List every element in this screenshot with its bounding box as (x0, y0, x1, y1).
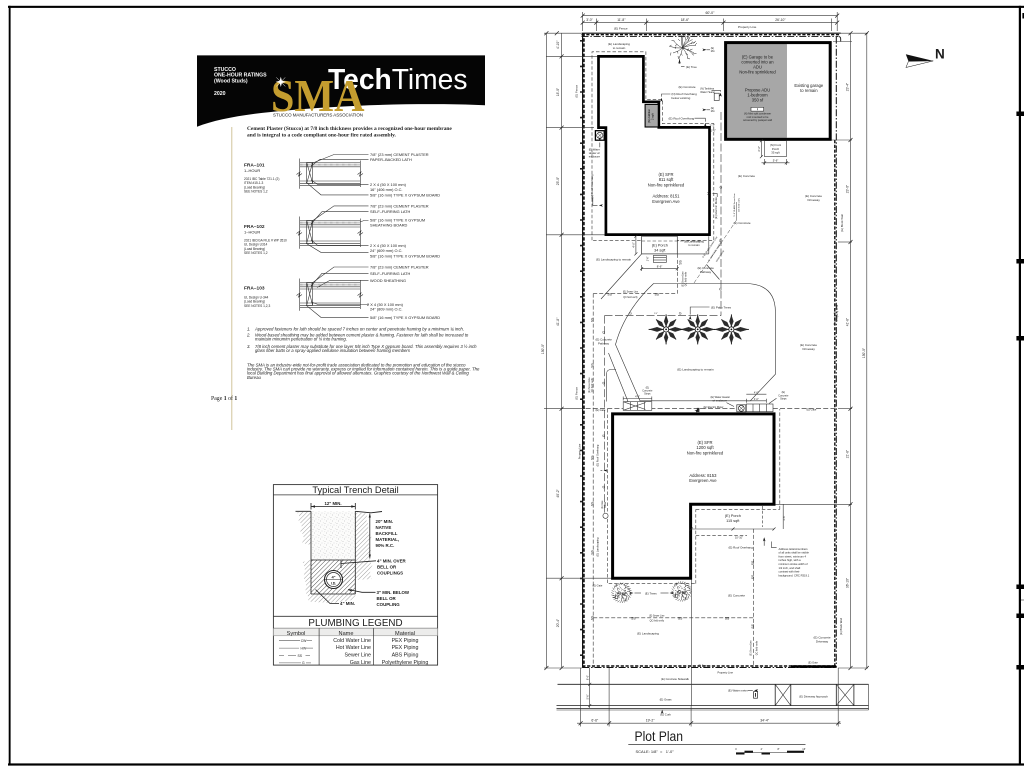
svg-text:(E) Trees: (E) Trees (645, 591, 657, 595)
svg-text:16" (406 mm) O.C.: 16" (406 mm) O.C. (370, 187, 403, 192)
svg-text:19'-2": 19'-2" (646, 719, 655, 723)
svg-text:COUPLINGS: COUPLINGS (377, 570, 403, 575)
svg-text:Approved fasteners for lath sh: Approved fasteners for lath should be sp… (254, 327, 464, 332)
svg-text:(E) Block Wall: (E) Block Wall (839, 618, 843, 635)
svg-text:5/8" (16 mm) TYPE X GYPSUM BOA: 5/8" (16 mm) TYPE X GYPSUM BOARD (370, 315, 440, 320)
svg-text:BACKFILL: BACKFILL (376, 531, 398, 536)
svg-text:1.: 1. (247, 327, 251, 332)
svg-text:3'-6": 3'-6" (782, 515, 786, 520)
svg-text:COUPLING: COUPLING (377, 602, 401, 607)
svg-text:(E) Sewer Line: (E) Sewer Line (750, 640, 753, 656)
svg-text:(E) Concrete: (E) Concrete (679, 85, 696, 89)
svg-text:MATERIAL,: MATERIAL, (376, 537, 400, 542)
svg-text:(E) Sewer Line: (E) Sewer Line (682, 271, 685, 287)
svg-text:maintain minumim penetration o: maintain minumim penetration of ⅜ into f… (255, 337, 347, 342)
svg-text:(E) Gate: (E) Gate (808, 660, 818, 664)
svg-text:1/2 inch, and shall: 1/2 inch, and shall (779, 566, 801, 570)
svg-text:Min: Min (711, 50, 716, 53)
svg-text:(E) Gate: (E) Gate (593, 583, 603, 587)
svg-text:(N) Addition: (N) Addition (647, 108, 651, 123)
svg-text:24" (609 mm) O.C.: 24" (609 mm) O.C. (370, 248, 403, 253)
svg-text:(E) Sewer Line: (E) Sewer Line (649, 614, 665, 617)
svg-text:26'-10": 26'-10" (775, 18, 786, 22)
svg-text:G: G (602, 331, 606, 334)
svg-text:SS: SS (591, 363, 595, 368)
svg-text:1'-6": 1'-6" (647, 256, 650, 261)
svg-text:(E) Sewer Line: (E) Sewer Line (623, 291, 639, 294)
svg-text:SEE NOTES 1,2: SEE NOTES 1,2 (244, 251, 268, 255)
svg-text:(E) Driveway Approach: (E) Driveway Approach (799, 695, 828, 699)
svg-text:Plot Plan: Plot Plan (635, 728, 684, 744)
svg-text:18'-6": 18'-6" (681, 18, 690, 22)
svg-text:SS: SS (631, 616, 636, 620)
svg-text:SS: SS (751, 623, 755, 628)
svg-text:to remain: to remain (688, 243, 700, 247)
svg-text:5'-6": 5'-6" (773, 159, 779, 163)
svg-text:enclosure: enclosure (589, 154, 601, 158)
svg-text:screened by parapet wall: screened by parapet wall (743, 118, 772, 122)
svg-text:SS: SS (298, 654, 303, 658)
svg-text:Bureau: Bureau (247, 375, 261, 380)
svg-text:21'-8": 21'-8" (846, 449, 850, 458)
svg-text:SEE NOTES 1,2: SEE NOTES 1,2 (244, 190, 268, 194)
svg-text:3'-0": 3'-0" (586, 18, 593, 22)
svg-text:4": 4" (331, 574, 335, 579)
svg-text:(E) Electric Meter: (E) Electric Meter (714, 197, 718, 219)
svg-text:BELL OR: BELL OR (377, 596, 397, 601)
svg-text:QC field verify: QC field verify (756, 640, 759, 655)
svg-text:(E) Landscaping to remain: (E) Landscaping to remain (677, 368, 714, 372)
svg-text:(E) Tree: (E) Tree (686, 65, 697, 69)
svg-text:G: G (629, 311, 632, 315)
svg-text:(E) Porch: (E) Porch (725, 514, 741, 518)
svg-text:(E) Curb: (E) Curb (660, 712, 671, 716)
svg-text:inches high, with a: inches high, with a (779, 558, 802, 562)
svg-text:SS: SS (725, 616, 730, 620)
svg-text:CW: CW (301, 639, 307, 643)
svg-text:ABS Piping: ABS Piping (392, 653, 419, 659)
svg-text:10'-10": 10'-10" (735, 536, 743, 540)
svg-text:34'-4": 34'-4" (760, 719, 769, 723)
svg-text:SHEATHING BOARD: SHEATHING BOARD (370, 222, 408, 227)
svg-text:4'-0": 4'-0" (754, 391, 759, 394)
svg-text:(E) Sewer Line: (E) Sewer Line (588, 377, 591, 393)
svg-text:Pathway: Pathway (700, 270, 712, 274)
svg-text:G: G (679, 311, 682, 315)
svg-text:23'-0": 23'-0" (846, 184, 850, 193)
svg-text:Name: Name (339, 631, 354, 637)
svg-text:1'-6": 1'-6" (711, 129, 716, 133)
svg-text:background. CRC R319.1: background. CRC R319.1 (779, 573, 810, 577)
svg-text:Evergreen Ave: Evergreen Ave (689, 478, 717, 483)
svg-text:of all units shall be visible: of all units shall be visible (779, 551, 810, 555)
svg-text:(E) Fence: (E) Fence (574, 85, 578, 98)
svg-text:5/8" (16 mm) TYPE X GYPSUM BOA: 5/8" (16 mm) TYPE X GYPSUM BOARD (370, 254, 440, 259)
svg-text:Sewer Line: Sewer Line (345, 653, 372, 659)
svg-text:G: G (302, 661, 305, 665)
svg-text:minimum stroke width of: minimum stroke width of (779, 562, 808, 566)
svg-text:(E) Porch: (E) Porch (652, 244, 668, 248)
svg-text:PLUMBING LEGEND: PLUMBING LEGEND (308, 618, 402, 629)
svg-text:WOOD SHEATHING: WOOD SHEATHING (370, 278, 406, 283)
svg-text:Typical Trench Detail: Typical Trench Detail (312, 485, 398, 495)
svg-text:Steps: Steps (780, 398, 787, 401)
svg-text:Water Heater: Water Heater (700, 91, 715, 94)
svg-text:from street, minimum 4: from street, minimum 4 (779, 554, 807, 558)
svg-text:6'-6": 6'-6" (757, 146, 761, 152)
svg-text:8'-6": 8'-6" (657, 265, 663, 269)
svg-text:1–HOUR: 1–HOUR (244, 168, 260, 173)
svg-text:Gas Line: Gas Line (350, 660, 371, 666)
svg-text:Driveway: Driveway (803, 347, 816, 351)
svg-text:6'-0": 6'-0" (586, 675, 590, 680)
svg-text:(E) Water: (E) Water (589, 148, 600, 152)
svg-text:(E) Electric Meter: (E) Electric Meter (704, 405, 724, 409)
svg-text:5'-6": 5'-6" (585, 694, 589, 699)
svg-text:Driveway: Driveway (808, 198, 821, 202)
svg-text:(E) Landscaping to remain: (E) Landscaping to remain (596, 258, 632, 262)
svg-text:SS: SS (591, 317, 595, 322)
svg-text:QC field verify: QC field verify (685, 271, 688, 286)
svg-text:Steps: Steps (644, 393, 651, 396)
svg-text:(E) Palm Trees: (E) Palm Trees (711, 305, 732, 309)
svg-text:90% R.C.: 90% R.C. (376, 543, 395, 548)
svg-text:(E) Concrete: (E) Concrete (738, 174, 755, 178)
svg-text:G: G (602, 485, 606, 488)
svg-text:QC field verify: QC field verify (650, 620, 665, 623)
svg-text:35 sqft: 35 sqft (771, 151, 780, 155)
svg-text:G: G (602, 381, 606, 384)
svg-text:SS: SS (655, 292, 660, 296)
svg-text:Driveway: Driveway (816, 639, 829, 643)
svg-text:23'-4": 23'-4" (846, 82, 850, 91)
svg-text:(E) Roof Overhang: (E) Roof Overhang (590, 174, 594, 199)
svg-text:(E) Grass: (E) Grass (660, 697, 673, 701)
svg-text:(E) Concrete: (E) Concrete (734, 221, 751, 225)
svg-text:PEX Piping: PEX Piping (392, 638, 419, 644)
svg-text:QC field verify: QC field verify (623, 296, 638, 299)
svg-text:(E) Concrete Sidewalk: (E) Concrete Sidewalk (661, 677, 689, 681)
svg-text:24" (809 mm) O.C.: 24" (809 mm) O.C. (370, 307, 403, 312)
svg-text:to remain: to remain (613, 46, 626, 50)
svg-text:(E) Landscaping: (E) Landscaping (596, 537, 600, 556)
svg-text:7/8" (23 mm) CEMENT PLASTER: 7/8" (23 mm) CEMENT PLASTER (370, 203, 429, 208)
svg-text:(E) Landscaping: (E) Landscaping (684, 240, 704, 244)
svg-text:2020: 2020 (214, 91, 226, 97)
svg-text:Property Line: Property Line (718, 671, 734, 675)
svg-text:(E) Roof Overhang: (E) Roof Overhang (729, 545, 754, 549)
svg-text:SS: SS (591, 501, 595, 506)
svg-text:and is integral to a code comp: and is integral to a code compliant one-… (247, 133, 397, 139)
svg-text:(E) Fence: (E) Fence (614, 26, 628, 30)
svg-text:(E) Roof OverHang: (E) Roof OverHang (669, 116, 695, 120)
svg-text:(E) Fence: (E) Fence (698, 664, 709, 667)
svg-text:Cement Plaster (Stucco) at 7/8: Cement Plaster (Stucco) at 7/8 inch thic… (247, 125, 452, 132)
svg-text:Min: Min (711, 110, 716, 113)
svg-text:40'-2": 40'-2" (556, 488, 560, 497)
svg-text:Material: Material (395, 631, 415, 637)
svg-text:36'-10": 36'-10" (846, 577, 850, 588)
svg-text:12" MIN.: 12" MIN. (324, 501, 341, 506)
svg-text:(E) Gate: (E) Gate (807, 408, 817, 412)
svg-text:4" MIN. OVER: 4" MIN. OVER (377, 558, 407, 563)
svg-text:3.: 3. (247, 344, 251, 349)
svg-text:(E) Landscaping: (E) Landscaping (637, 631, 659, 635)
svg-text:(E) Block Wall: (E) Block Wall (840, 214, 844, 232)
svg-text:SS: SS (751, 574, 755, 579)
svg-text:SS: SS (607, 292, 612, 296)
svg-text:150'-0": 150'-0" (862, 347, 866, 358)
svg-text:SELF–FURRING LATH: SELF–FURRING LATH (370, 271, 411, 276)
svg-text:Hot Water Line: Hot Water Line (336, 645, 371, 651)
svg-text:PAPER–BACKED LATH: PAPER–BACKED LATH (370, 157, 412, 162)
svg-text:(Wood Studs): (Wood Studs) (214, 79, 248, 85)
svg-text:SS: SS (679, 260, 683, 265)
svg-text:5'-0" Ø ABS Sewer Line: 5'-0" Ø ABS Sewer Line (733, 193, 736, 217)
svg-text:4'-6": 4'-6" (632, 242, 636, 248)
svg-text:350 sf: 350 sf (752, 98, 764, 103)
svg-text:(E) Water Heater: (E) Water Heater (711, 395, 731, 399)
svg-text:20'-4": 20'-4" (556, 618, 560, 627)
svg-text:HW: HW (301, 646, 307, 650)
svg-text:11'-8": 11'-8" (617, 18, 626, 22)
svg-text:glass fiber batts or a spray-a: glass fiber batts or a spray-applied cel… (255, 348, 411, 353)
svg-text:NATIVE: NATIVE (376, 525, 392, 530)
svg-text:Non-fire sprinklered: Non-fire sprinklered (739, 69, 776, 74)
svg-text:Meter: Meter (604, 501, 607, 507)
svg-text:(E) Gas: (E) Gas (602, 500, 604, 509)
svg-text:(E) Water meter: (E) Water meter (728, 688, 748, 692)
svg-text:Polyethylene Piping: Polyethylene Piping (382, 660, 429, 666)
svg-text:STUCCO MANUFACTURERS ASSOCIATI: STUCCO MANUFACTURERS ASSOCIATION (273, 113, 363, 118)
svg-text:below existing: below existing (671, 96, 690, 100)
svg-text:G: G (720, 186, 723, 190)
svg-text:contrast with their: contrast with their (779, 570, 800, 574)
svg-text:SS: SS (591, 549, 595, 554)
svg-text:150'-0": 150'-0" (541, 343, 545, 354)
svg-text:41'-8": 41'-8" (846, 317, 850, 326)
svg-text:(E) Fence: (E) Fence (574, 387, 578, 400)
svg-text:6'-6": 6'-6" (591, 719, 599, 723)
svg-text:SCALE: 1/8" = 1'-0": SCALE: 1/8" = 1'-0" (636, 749, 675, 754)
svg-text:Cold Water Line: Cold Water Line (333, 638, 371, 644)
svg-text:SS: SS (678, 616, 683, 620)
svg-text:1'0": 1'0" (654, 313, 658, 315)
svg-text:G: G (719, 287, 723, 290)
svg-text:SS: SS (591, 455, 595, 460)
svg-text:18'-0": 18'-0" (556, 87, 560, 96)
svg-text:20" MIN.: 20" MIN. (376, 519, 393, 524)
svg-text:16': 16' (802, 747, 806, 751)
svg-text:PEX Piping: PEX Piping (392, 645, 419, 651)
svg-text:BELL OR: BELL OR (377, 564, 397, 569)
svg-text:4'-10": 4'-10" (556, 40, 560, 49)
svg-text:Property Line: Property Line (577, 443, 581, 459)
svg-text:Page 1 of 1: Page 1 of 1 (211, 395, 237, 402)
svg-text:Pathway: Pathway (598, 342, 610, 346)
svg-text:4'-0": 4'-0" (754, 398, 759, 401)
svg-text:2.: 2. (246, 332, 251, 337)
svg-text:Evergreen Ave: Evergreen Ave (652, 199, 680, 204)
svg-text:34 sqft: 34 sqft (654, 249, 666, 253)
svg-text:4" MIN.: 4" MIN. (340, 601, 355, 606)
svg-text:1–HOUR: 1–HOUR (244, 230, 260, 235)
svg-text:(E) Concrete: (E) Concrete (728, 593, 745, 597)
svg-text:25'-0": 25'-0" (556, 176, 560, 185)
svg-text:I.D.: I.D. (331, 581, 337, 585)
svg-text:(E) Roof Overhang: (E) Roof Overhang (596, 444, 600, 466)
svg-text:Property Line: Property Line (833, 309, 837, 325)
svg-text:QC field verify: QC field verify (591, 377, 594, 392)
svg-text:Property Line: Property Line (738, 25, 757, 29)
svg-text:local Building Department has: local Building Department has final appr… (247, 371, 469, 376)
svg-text:FRA–103: FRA–103 (244, 286, 265, 292)
svg-text:SS: SS (751, 560, 755, 565)
svg-text:41'-8": 41'-8" (556, 317, 560, 326)
svg-text:Heater w/: Heater w/ (589, 151, 600, 155)
svg-text:SEE NOTES 1,2,3: SEE NOTES 1,2,3 (244, 304, 270, 308)
svg-text:(E) Gate: (E) Gate (596, 408, 606, 412)
svg-text:60'-0": 60'-0" (705, 11, 715, 15)
svg-text:7/8" (23 mm) CEMENT PLASTER: 7/8" (23 mm) CEMENT PLASTER (370, 265, 429, 270)
svg-text:SELF–FURRING LATH: SELF–FURRING LATH (370, 209, 411, 214)
svg-text:115 sqft: 115 sqft (726, 519, 740, 523)
svg-text:4'-0": 4'-0" (635, 396, 640, 399)
svg-text:Non-fire sprinklered: Non-fire sprinklered (648, 182, 685, 187)
svg-text:to remain: to remain (800, 88, 818, 93)
svg-text:3'-7": 3'-7" (710, 124, 715, 128)
svg-text:QC field verify: QC field verify (738, 197, 741, 212)
svg-text:3" MIN. BELOW: 3" MIN. BELOW (377, 590, 410, 595)
svg-text:G: G (602, 434, 606, 437)
svg-text:Symbol: Symbol (287, 631, 306, 637)
svg-text:N: N (935, 47, 945, 62)
svg-text:Address letters/numbers: Address letters/numbers (779, 547, 809, 551)
svg-text:5/8" (16 mm) TYPE X GYPSUM BOA: 5/8" (16 mm) TYPE X GYPSUM BOARD (370, 192, 440, 197)
svg-text:w/ enclosure: w/ enclosure (713, 399, 728, 403)
svg-text:Non-fire sprinklered: Non-fire sprinklered (687, 450, 724, 455)
svg-text:2 sqft: 2 sqft (651, 113, 655, 120)
